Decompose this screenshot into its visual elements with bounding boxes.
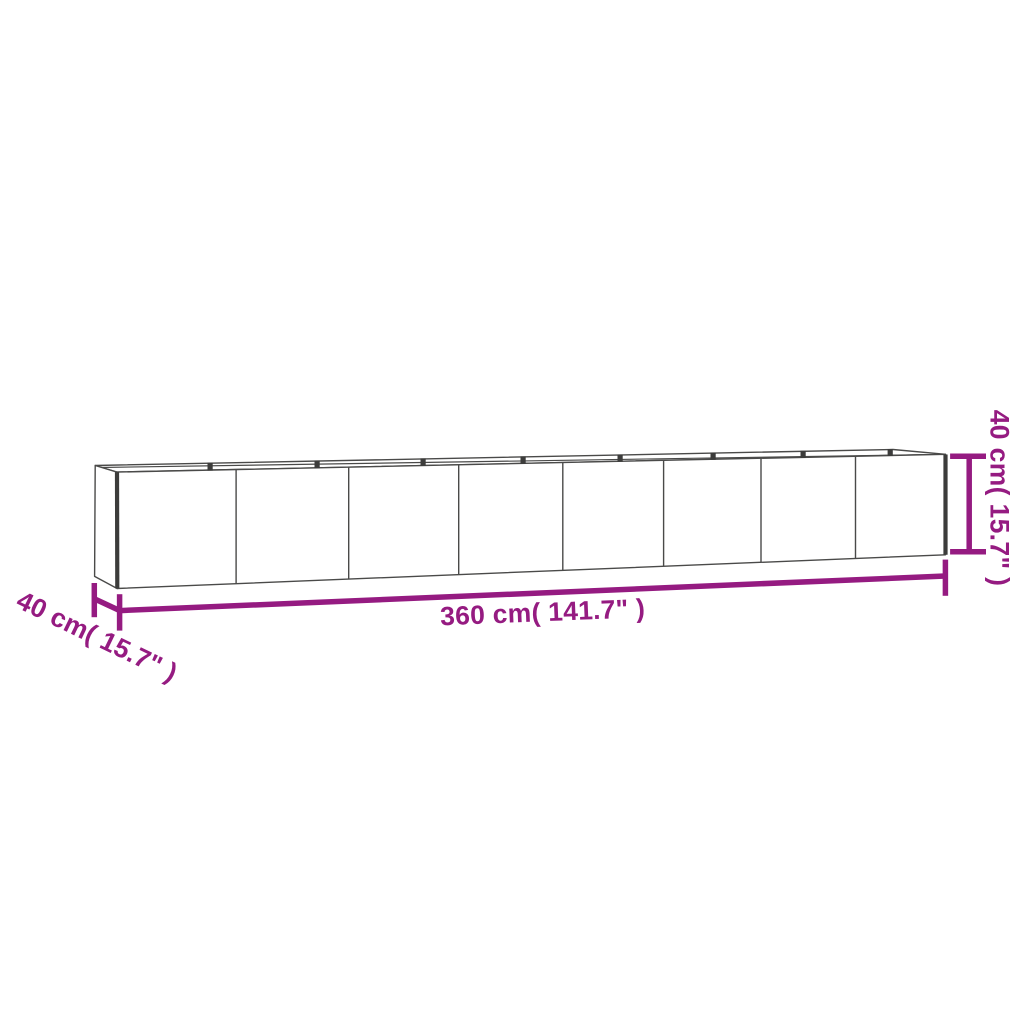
svg-text:40 cm( 15.7" ): 40 cm( 15.7" ) — [985, 410, 1015, 587]
